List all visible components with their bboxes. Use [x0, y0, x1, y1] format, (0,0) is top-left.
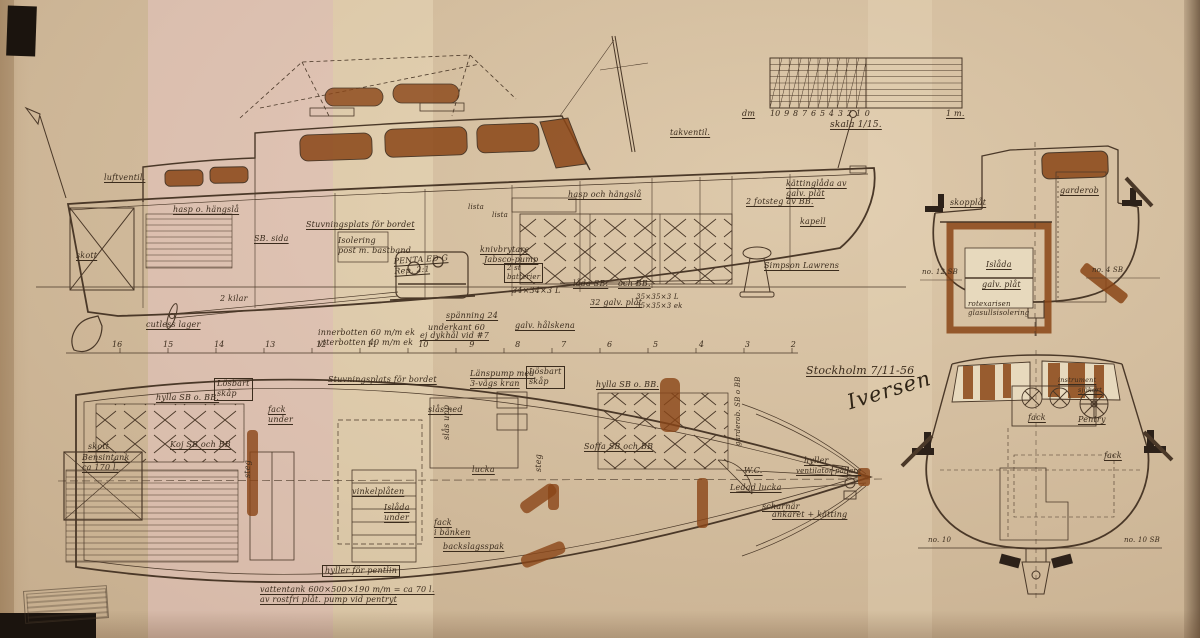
spec-row-lvl: [862, 568, 872, 579]
label-skott-plan: skott: [88, 442, 109, 452]
label-garderob-section: garderob: [1060, 186, 1099, 196]
label-frame-no10sb: no. 10 SB: [1124, 536, 1160, 545]
label-losbart-2: Lösbart skåp: [526, 366, 565, 389]
list-value: 4: [829, 109, 834, 118]
label-takventil: takventil.: [670, 128, 710, 138]
scale-ratio-label: skala 1/15.: [830, 120, 882, 132]
label-ankaret: ankaret + kätting: [772, 510, 847, 520]
list-value: 10: [770, 109, 780, 118]
label-och-bb: och BB.: [618, 279, 651, 289]
label-hasp-fwd: hasp och hängslå: [568, 190, 642, 200]
label-batterier: 2 st batterier: [504, 263, 543, 283]
label-frame-no12: no. 12 SB: [922, 268, 958, 277]
list-value: 14: [214, 340, 224, 349]
aft-berth-planks: [146, 214, 232, 268]
section-window: [1042, 151, 1109, 179]
scale-dm-label: dm: [742, 109, 755, 119]
label-vattentank: vattentank 600×500×190 m/m = ca 70 l. av…: [260, 585, 435, 606]
cockpit-sole-planks: [66, 470, 238, 562]
label-wc: W.C.: [744, 466, 763, 476]
cross-section-aft: [920, 142, 1160, 336]
label-islada-section: Islåda: [986, 260, 1012, 270]
label-garderob-vert: garderob. SB o BB: [734, 377, 743, 446]
label-ledad-lucka: Ledad lucka: [730, 483, 782, 493]
label-fack-1: fack: [1028, 413, 1046, 423]
list-value: 16: [112, 340, 122, 349]
label-luftventil: luftventil.: [104, 173, 145, 183]
fwd-hull: [926, 450, 1148, 549]
label-skopplat: skopplåt: [950, 198, 986, 208]
label-hyller-pentlin: hyller för pentlin: [322, 565, 400, 577]
label-spanning: spänning 24: [446, 311, 498, 321]
spec-row-djupg: [862, 579, 872, 590]
side-elevation-view: [26, 36, 906, 353]
label-fotsteg: 2 fotsteg av BB.: [746, 197, 814, 207]
label-profil-dim: 35×35×3 L 35×35×3 ek: [636, 293, 683, 311]
label-lucka: lucka: [472, 465, 495, 475]
cross-section-fwd: [902, 350, 1172, 600]
list-value: 3: [838, 109, 843, 118]
fwd-roof: [952, 355, 1122, 364]
label-galvplat-section: galv. plåt: [982, 280, 1021, 290]
label-bensintank: Bensintank ca 170 l.: [82, 453, 130, 474]
list-value: 7: [802, 109, 807, 118]
label-frame-no10: no. 10: [928, 536, 951, 545]
label-backslag: backslagsspak: [443, 542, 504, 552]
list-value: 9: [784, 109, 789, 118]
blueprint-sheet: luftventil. takventil. hasp o. hängslå h…: [0, 0, 1200, 638]
label-frame-no4: no. 4 SB: [1092, 266, 1123, 275]
list-value: 9: [469, 340, 474, 349]
label-simpson: Simpson Lawrens: [764, 261, 839, 271]
list-value: 0: [865, 109, 870, 118]
label-engine-penta: PENTA ED G Rep. 2:1: [393, 253, 449, 278]
label-sjokort: sjökort: [1078, 386, 1102, 394]
stern-locker: [70, 208, 134, 290]
label-lista-1: lista: [468, 203, 484, 212]
list-value: 12: [316, 340, 326, 349]
list-value: 7: [561, 340, 566, 349]
cabin-windows: [165, 118, 586, 186]
rudder: [72, 316, 102, 352]
label-knivbrytare: knivbrytare: [480, 245, 529, 255]
list-value: 1: [856, 109, 861, 118]
engine-hatch: [338, 420, 422, 544]
label-vinkel: vinkelplåten: [352, 487, 404, 497]
archive-stamp: [23, 585, 109, 624]
scale-1m-label: 1 m.: [946, 109, 965, 119]
spec-row-depl: [862, 590, 872, 601]
label-hylla-left: hylla SB o. BB.: [156, 393, 219, 403]
label-soffa: Soffa SB och BB: [584, 442, 653, 452]
label-hylla-right: hylla SB o. BB.: [596, 380, 659, 390]
list-value: 15: [163, 340, 173, 349]
label-bank-dim: 34×34×3 L: [512, 286, 561, 296]
saloon-berths-x: [520, 214, 732, 284]
label-galv-plat: 32 galv. plåt: [590, 298, 642, 308]
list-value: 5: [653, 340, 658, 349]
list-value: 8: [793, 109, 798, 118]
label-lista-2: lista: [492, 211, 508, 220]
label-ventilator: ventilator-pållare: [796, 467, 861, 476]
label-kapell: kapell: [800, 217, 826, 227]
plan-wood-stains: [247, 378, 870, 569]
label-hasp-aft: hasp o. hängslå: [173, 205, 239, 215]
archive-stamp-text: [26, 588, 108, 623]
label-steg-2: steg: [534, 454, 544, 472]
label-halskena: galv. hålskena: [515, 321, 575, 331]
label-sb-sida: SB. sida: [254, 234, 289, 244]
list-value: 3: [745, 340, 750, 349]
drawing-canvas: [0, 0, 1200, 638]
stern-flagstaff: [26, 108, 66, 198]
label-hyller: hyller: [804, 456, 829, 466]
list-value: 11: [367, 340, 377, 349]
label-slas-upp: slås upp: [442, 405, 452, 440]
scale-digits: 109876543210: [770, 109, 870, 118]
label-islada-under: Islåda under: [384, 503, 410, 524]
label-steg-1: steg: [243, 460, 253, 478]
label-stuvningsplats-plan: Stuvningsplats för bordet: [328, 375, 437, 385]
list-value: 10: [418, 340, 428, 349]
label-isolering-section: rotexarisen glasullsisolering: [968, 300, 1029, 318]
label-stuvningsplats-side: Stuvningsplats för bordet: [306, 220, 415, 230]
propeller-shaft: [172, 292, 398, 318]
list-value: 8: [515, 340, 520, 349]
label-losbart-1: Lösbart skåp: [214, 378, 253, 401]
label-kilar: 2 kilar: [220, 294, 248, 304]
label-instrument: instrument: [1058, 376, 1096, 384]
list-value: 13: [265, 340, 275, 349]
label-pentry: Pentry: [1078, 415, 1106, 425]
list-value: 2: [847, 109, 852, 118]
label-lanspump: Länspump med 3-vägs kran: [470, 369, 535, 390]
scale-bar: [770, 58, 962, 108]
engine-box-section: [1000, 468, 1068, 540]
list-value: 6: [811, 109, 816, 118]
label-fack-under: fack under: [268, 405, 293, 426]
label-skott-side: skott: [76, 251, 97, 261]
list-value: 2: [791, 340, 796, 349]
label-koj: Koj SB och BB: [170, 440, 231, 450]
canopy-stains: [325, 84, 459, 106]
label-fack-2: fack: [1104, 451, 1122, 461]
list-value: 5: [820, 109, 825, 118]
label-cutless-lager: cutless lager: [146, 320, 201, 330]
label-fack-banken: fack i bänken: [434, 518, 470, 539]
folding-canopy: [240, 55, 516, 118]
station-numbers: 1615141312111098765432: [112, 340, 796, 349]
toilet-profile: [740, 247, 774, 297]
label-isolering: Isolering post m. bastband: [338, 236, 411, 257]
list-value: 4: [699, 340, 704, 349]
list-value: 6: [607, 340, 612, 349]
fwd-gunwale-brackets: [912, 430, 1166, 455]
label-lada-sb: låda SB.: [573, 279, 608, 289]
